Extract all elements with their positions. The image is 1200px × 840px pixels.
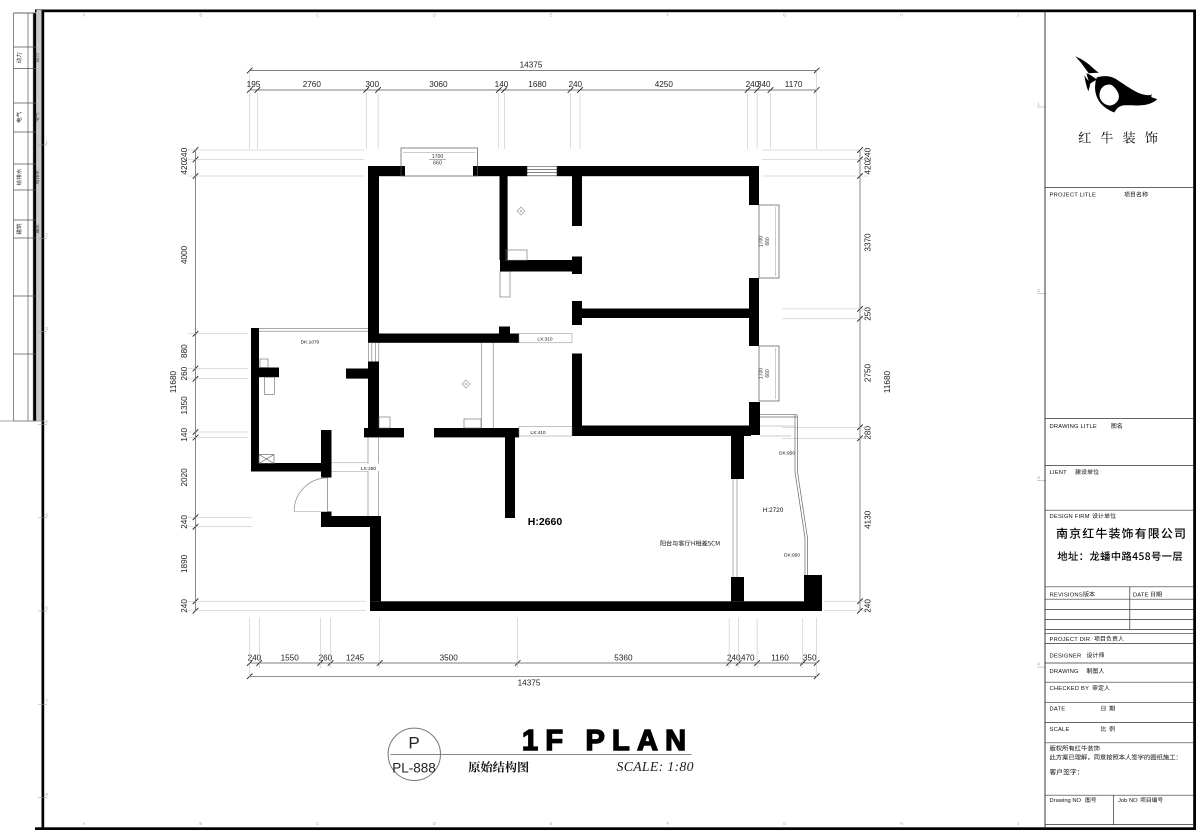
svg-text:1700: 1700 xyxy=(759,368,765,379)
svg-text:DK:950: DK:950 xyxy=(784,553,800,559)
svg-text:A: A xyxy=(83,821,86,826)
svg-text:DK:1070: DK:1070 xyxy=(301,340,320,346)
svg-text:420: 420 xyxy=(864,160,873,174)
svg-text:PL-888: PL-888 xyxy=(392,761,436,776)
svg-text:J: J xyxy=(1017,13,1019,18)
svg-text:2020: 2020 xyxy=(180,468,189,487)
svg-text:E: E xyxy=(550,13,553,18)
svg-text:F: F xyxy=(666,13,669,18)
svg-text:1F PLAN: 1F PLAN xyxy=(522,725,693,757)
svg-text:4250: 4250 xyxy=(655,80,674,89)
svg-text:11680: 11680 xyxy=(169,370,178,393)
svg-text:LX:310: LX:310 xyxy=(537,337,553,343)
svg-text:E: E xyxy=(550,821,553,826)
svg-text:300: 300 xyxy=(365,80,379,89)
svg-text:C: C xyxy=(316,13,319,18)
svg-text:B: B xyxy=(199,13,202,18)
svg-text:660: 660 xyxy=(433,161,442,167)
svg-text:260: 260 xyxy=(180,366,189,380)
svg-text:140: 140 xyxy=(180,428,189,442)
svg-text:B: B xyxy=(199,821,202,826)
svg-text:470: 470 xyxy=(741,653,755,662)
svg-text:420: 420 xyxy=(180,160,189,174)
svg-text:DRAWING LITLE: DRAWING LITLE xyxy=(1050,424,1097,430)
svg-text:4000: 4000 xyxy=(180,245,189,264)
svg-text:DESIGNER: DESIGNER xyxy=(1050,653,1082,659)
svg-text:DK:950: DK:950 xyxy=(779,451,795,457)
svg-text:D: D xyxy=(433,821,436,826)
svg-text:1350: 1350 xyxy=(180,396,189,415)
svg-text:240: 240 xyxy=(180,599,189,613)
svg-text:LX:410: LX:410 xyxy=(530,430,546,436)
svg-text:1700: 1700 xyxy=(759,236,765,247)
svg-text:240: 240 xyxy=(180,147,189,161)
svg-text:1170: 1170 xyxy=(785,80,803,89)
svg-text:LIENT: LIENT xyxy=(1050,470,1068,476)
svg-text:DATE: DATE xyxy=(1050,707,1066,713)
svg-text:SCALE: 1:80: SCALE: 1:80 xyxy=(617,759,694,774)
svg-text:660: 660 xyxy=(765,369,771,378)
svg-text:G: G xyxy=(783,13,786,18)
svg-text:2750: 2750 xyxy=(864,363,873,382)
svg-text:350: 350 xyxy=(803,653,817,662)
svg-text:PROJECT LITLE: PROJECT LITLE xyxy=(1050,193,1097,199)
svg-text:H: H xyxy=(900,821,903,826)
svg-text:1245: 1245 xyxy=(346,653,365,662)
svg-text:880: 880 xyxy=(180,344,189,358)
svg-text:F: F xyxy=(666,821,669,826)
svg-text:H:2720: H:2720 xyxy=(763,507,784,514)
svg-text:REVISIONS: REVISIONS xyxy=(1050,592,1083,598)
svg-text:D: D xyxy=(433,13,436,18)
svg-text:660: 660 xyxy=(765,237,771,246)
svg-text:DATE: DATE xyxy=(1133,592,1149,598)
svg-text:2760: 2760 xyxy=(303,80,322,89)
svg-text:140: 140 xyxy=(495,80,509,89)
svg-text:340: 340 xyxy=(757,80,771,89)
svg-text:1680: 1680 xyxy=(528,80,547,89)
svg-text:14375: 14375 xyxy=(520,61,543,70)
svg-text:280: 280 xyxy=(864,426,873,440)
svg-text:A: A xyxy=(83,13,86,18)
svg-text:1160: 1160 xyxy=(771,653,789,662)
svg-text:LX:250: LX:250 xyxy=(361,466,377,472)
svg-text:14375: 14375 xyxy=(518,679,541,688)
svg-text:1890: 1890 xyxy=(180,554,189,573)
svg-text:11680: 11680 xyxy=(883,370,892,393)
svg-text:J: J xyxy=(1017,821,1019,826)
svg-text:SCALE: SCALE xyxy=(1050,727,1070,733)
svg-text:CHECKED BY: CHECKED BY xyxy=(1050,686,1090,692)
svg-text:3060: 3060 xyxy=(429,80,448,89)
svg-text:DESIGN FIRM: DESIGN FIRM xyxy=(1050,514,1090,520)
svg-text:240: 240 xyxy=(180,515,189,529)
svg-text:1550: 1550 xyxy=(281,653,300,662)
svg-text:C: C xyxy=(316,821,319,826)
svg-text:3370: 3370 xyxy=(864,233,873,252)
svg-text:PROJECT DIR: PROJECT DIR xyxy=(1050,637,1091,643)
svg-text:DRAWING: DRAWING xyxy=(1050,669,1079,675)
svg-text:4130: 4130 xyxy=(864,510,873,529)
svg-text:H:2660: H:2660 xyxy=(528,516,563,528)
svg-text:Job NO: Job NO xyxy=(1118,798,1138,804)
svg-text:G: G xyxy=(783,821,786,826)
svg-text:Drawing NO: Drawing NO xyxy=(1050,798,1082,804)
svg-text:5360: 5360 xyxy=(614,653,633,662)
svg-text:195: 195 xyxy=(247,80,261,89)
svg-text:3500: 3500 xyxy=(440,653,459,662)
svg-text:P: P xyxy=(408,734,419,753)
svg-text:H: H xyxy=(900,13,903,18)
svg-text:240: 240 xyxy=(568,80,582,89)
